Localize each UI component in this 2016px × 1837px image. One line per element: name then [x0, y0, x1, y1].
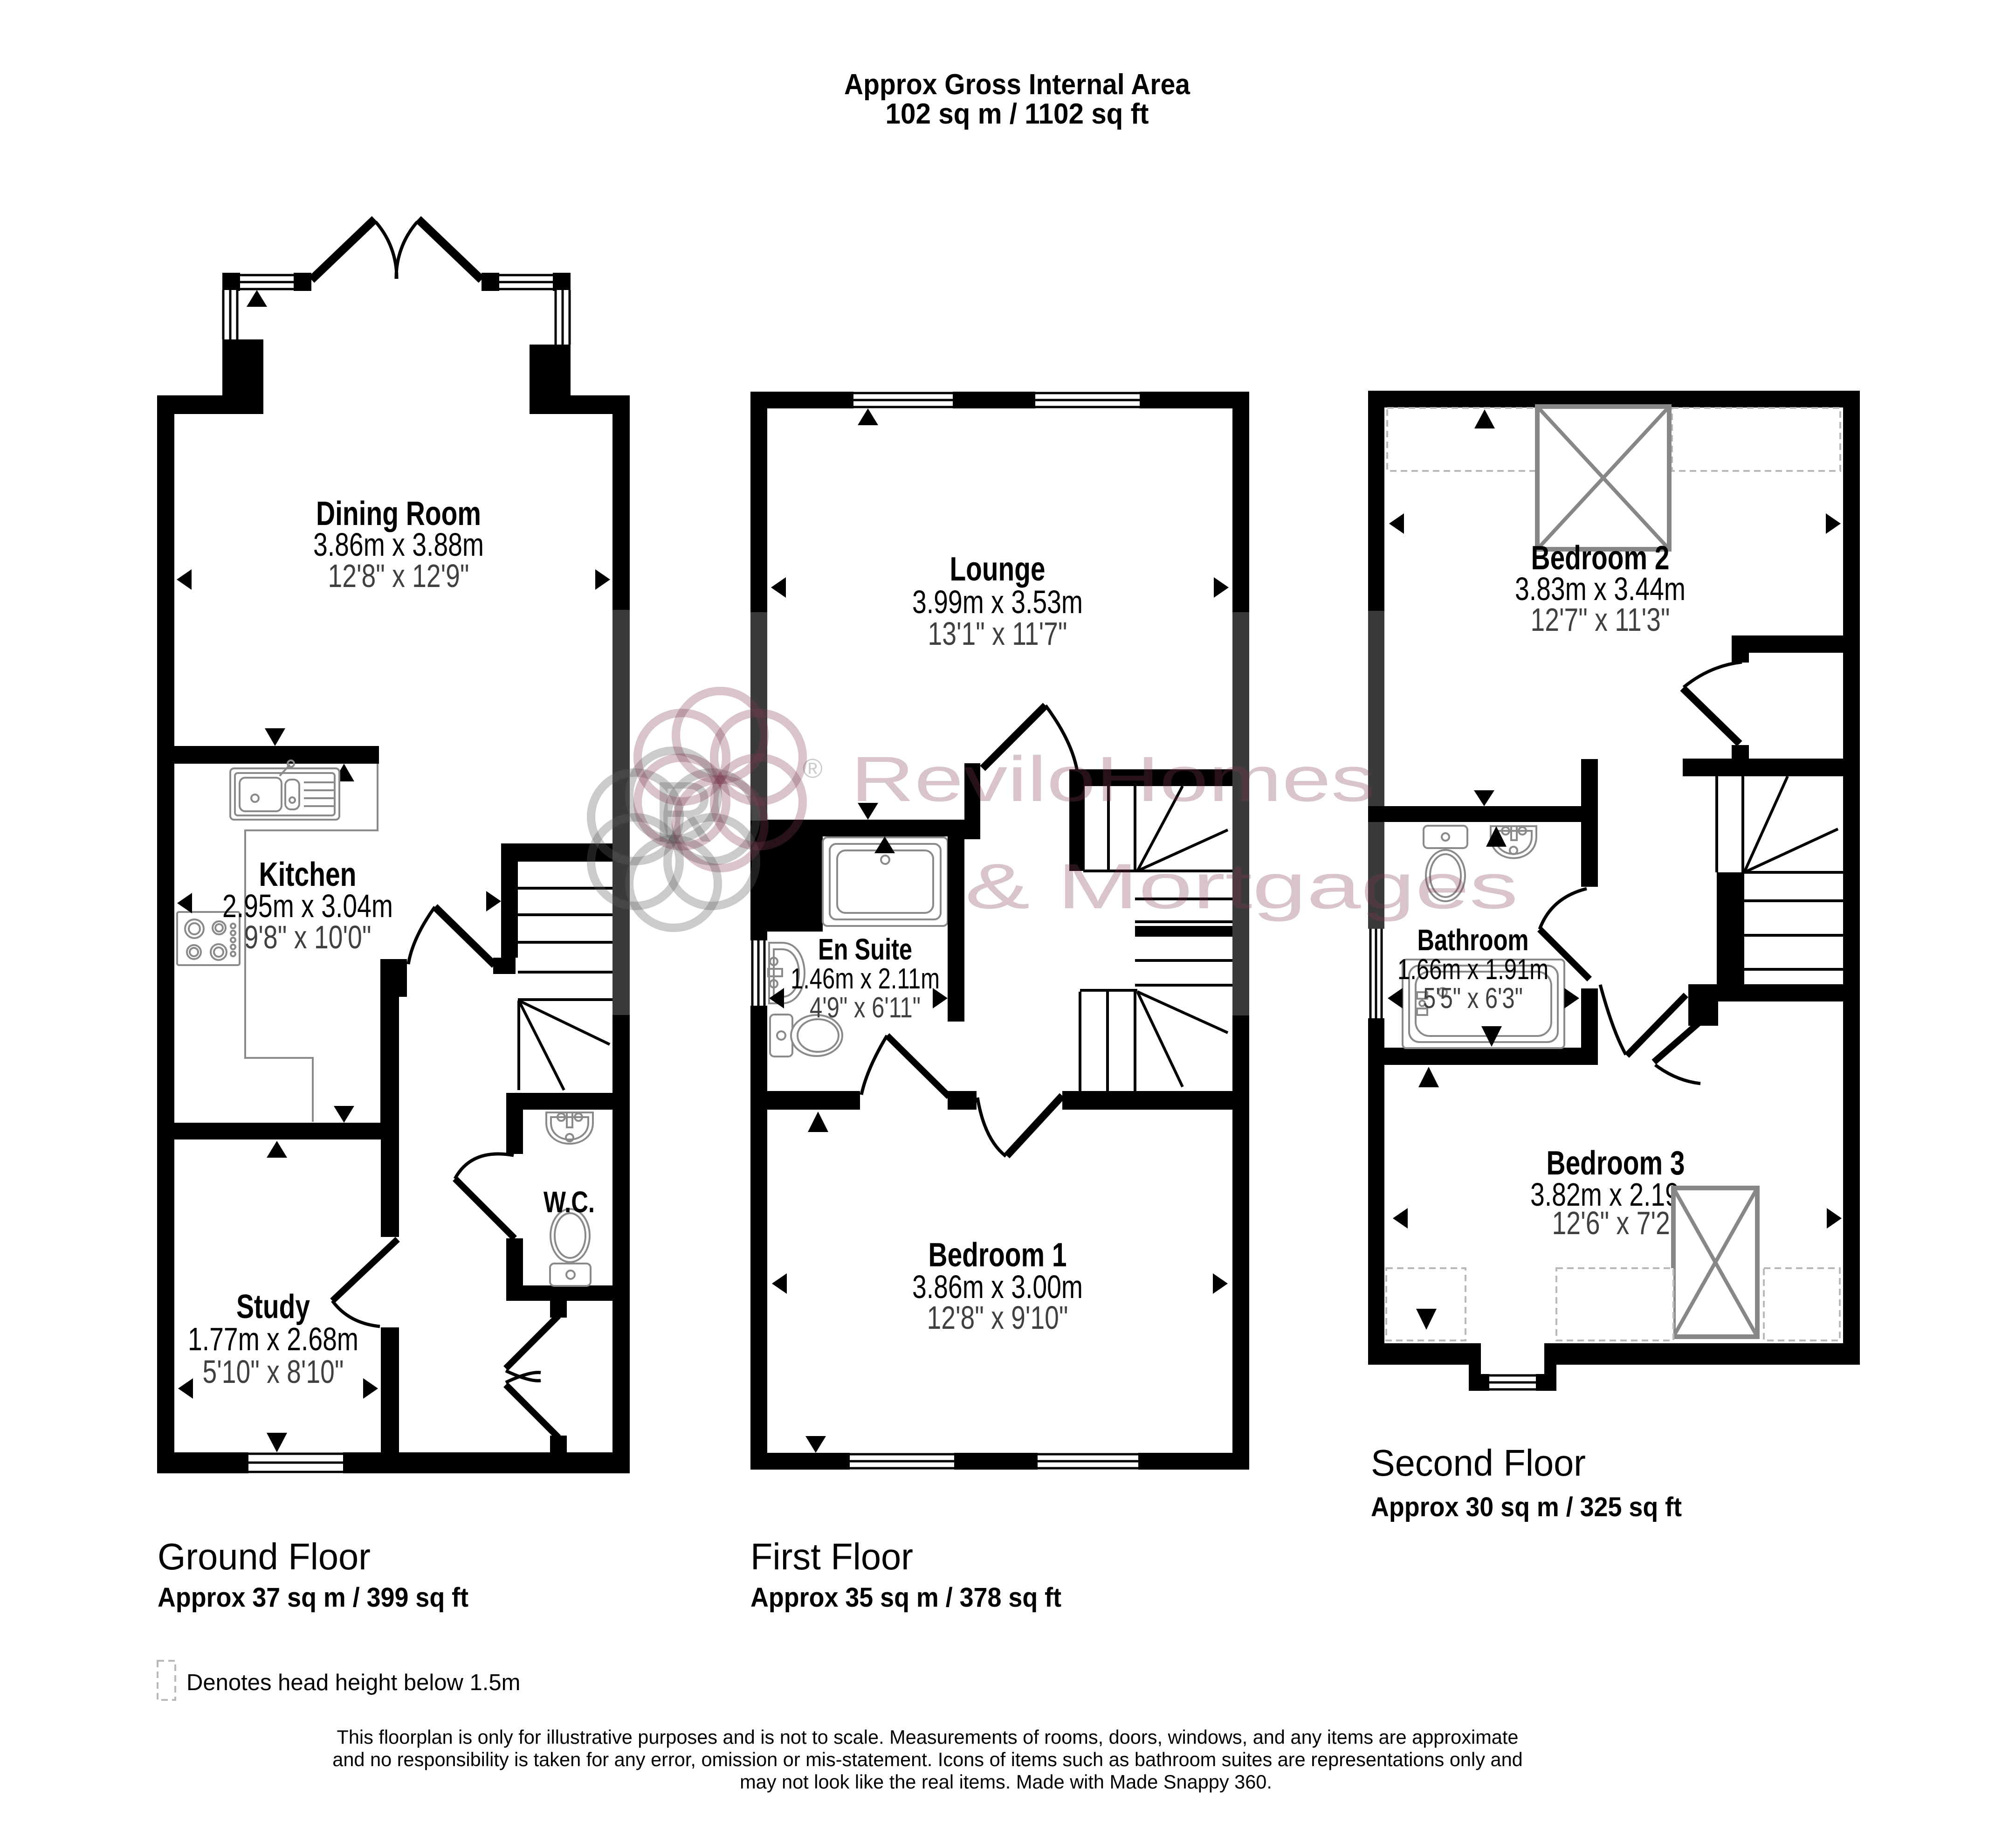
svg-text:12'6" x 7'2": 12'6" x 7'2" — [1552, 1205, 1679, 1241]
svg-text:First Floor: First Floor — [750, 1536, 913, 1577]
svg-text:3.99m x 3.53m: 3.99m x 3.53m — [912, 584, 1083, 620]
svg-text:5'10" x 8'10": 5'10" x 8'10" — [203, 1354, 344, 1390]
svg-text:and no responsibility is taken: and no responsibility is taken for any e… — [332, 1748, 1522, 1770]
svg-text:Denotes head height below 1.5m: Denotes head height below 1.5m — [186, 1670, 520, 1695]
svg-text:& Mortgages: & Mortgages — [965, 851, 1518, 922]
svg-text:Approx 30 sq m / 325 sq ft: Approx 30 sq m / 325 sq ft — [1371, 1492, 1682, 1522]
svg-text:102 sq m / 1102 sq ft: 102 sq m / 1102 sq ft — [886, 98, 1149, 130]
svg-text:4'9" x 6'11": 4'9" x 6'11" — [810, 992, 921, 1024]
svg-text:9'8" x 10'0": 9'8" x 10'0" — [244, 919, 372, 955]
svg-text:12'8" x 12'9": 12'8" x 12'9" — [328, 558, 469, 594]
svg-text:may not look like the real ite: may not look like the real items. Made w… — [740, 1771, 1272, 1793]
svg-text:Lounge: Lounge — [950, 551, 1046, 588]
svg-text:Study: Study — [236, 1288, 310, 1326]
svg-text:Approx 37 sq m / 399 sq ft: Approx 37 sq m / 399 sq ft — [158, 1582, 468, 1613]
svg-text:5'5" x 6'3": 5'5" x 6'3" — [1423, 982, 1523, 1015]
svg-text:W.C.: W.C. — [544, 1185, 595, 1219]
svg-text:Second Floor: Second Floor — [1371, 1442, 1586, 1484]
svg-text:13'1" x 11'7": 13'1" x 11'7" — [928, 615, 1067, 652]
svg-text:Ground Floor: Ground Floor — [158, 1536, 371, 1577]
svg-text:Approx Gross Internal Area: Approx Gross Internal Area — [844, 69, 1190, 101]
svg-text:®: ® — [803, 753, 823, 784]
svg-text:Bedroom 1: Bedroom 1 — [929, 1236, 1067, 1274]
svg-text:This floorplan is only for ill: This floorplan is only for illustrative … — [337, 1726, 1519, 1748]
svg-text:Approx 35 sq m / 378 sq ft: Approx 35 sq m / 378 sq ft — [750, 1582, 1061, 1613]
svg-text:ReviloHomes: ReviloHomes — [851, 744, 1375, 815]
svg-text:1.66m x 1.91m: 1.66m x 1.91m — [1397, 953, 1548, 986]
svg-text:12'8" x 9'10": 12'8" x 9'10" — [927, 1299, 1068, 1336]
svg-text:En Suite: En Suite — [818, 932, 912, 966]
svg-text:1.46m x 2.11m: 1.46m x 2.11m — [791, 963, 940, 995]
svg-text:12'7" x 11'3": 12'7" x 11'3" — [1531, 601, 1670, 638]
svg-text:1.77m x 2.68m: 1.77m x 2.68m — [188, 1321, 358, 1357]
svg-text:Bathroom: Bathroom — [1417, 923, 1529, 957]
